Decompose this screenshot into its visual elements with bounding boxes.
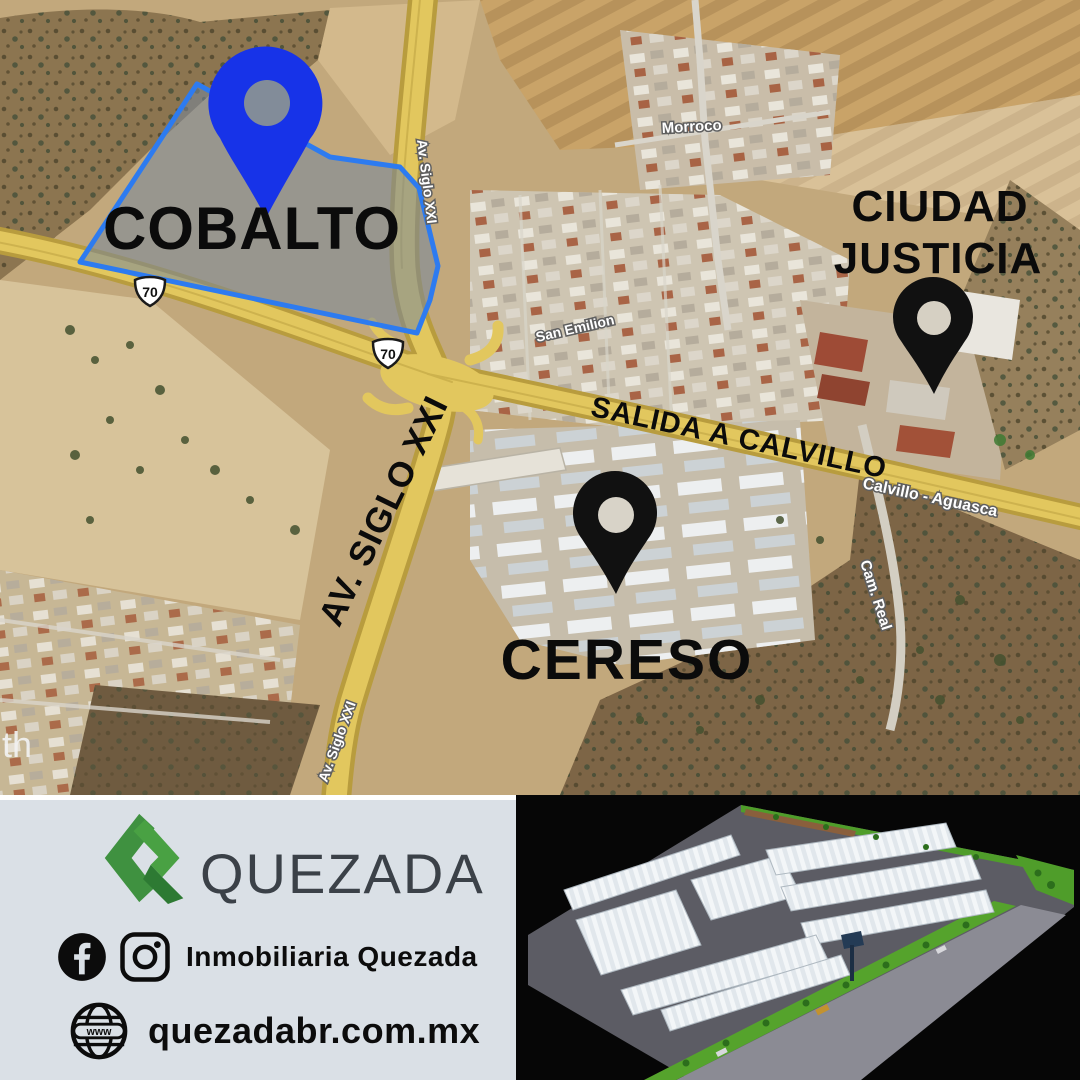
- label-ciudad: CIUDAD: [851, 182, 1028, 231]
- label-justicia: JUSTICIA: [834, 234, 1042, 283]
- globe-www-label: www: [86, 1026, 113, 1038]
- social-row: Inmobiliaria Quezada: [56, 930, 478, 984]
- brand-name: QUEZADA: [200, 847, 485, 904]
- satellite-map: 70 70 Av. Siglo XXI Av. Sig: [0, 0, 1080, 795]
- facebook-icon: [56, 931, 108, 983]
- website-row: www quezadabr.com.mx: [68, 1000, 480, 1062]
- social-handle: Inmobiliaria Quezada: [186, 941, 478, 973]
- label-cereso: CERESO: [501, 628, 754, 692]
- street-label-morroco: Morroco: [661, 117, 722, 137]
- brand-logo: QUEZADA: [94, 812, 485, 904]
- globe-www-icon: www: [68, 1000, 130, 1062]
- watermark-fragment: th: [2, 724, 32, 765]
- brand-panel: QUEZADA Inmobiliaria Quezada: [0, 795, 516, 1080]
- website-url: quezadabr.com.mx: [148, 1010, 480, 1052]
- shield-number: 70: [142, 284, 158, 300]
- instagram-icon: [118, 930, 172, 984]
- shield-number: 70: [380, 346, 396, 362]
- footer: QUEZADA Inmobiliaria Quezada: [0, 795, 1080, 1080]
- quezada-logo-icon: [94, 812, 196, 904]
- real-estate-flyer: 70 70 Av. Siglo XXI Av. Sig: [0, 0, 1080, 1080]
- label-cobalto: COBALTO: [103, 195, 401, 262]
- industrial-park-render: [516, 795, 1080, 1080]
